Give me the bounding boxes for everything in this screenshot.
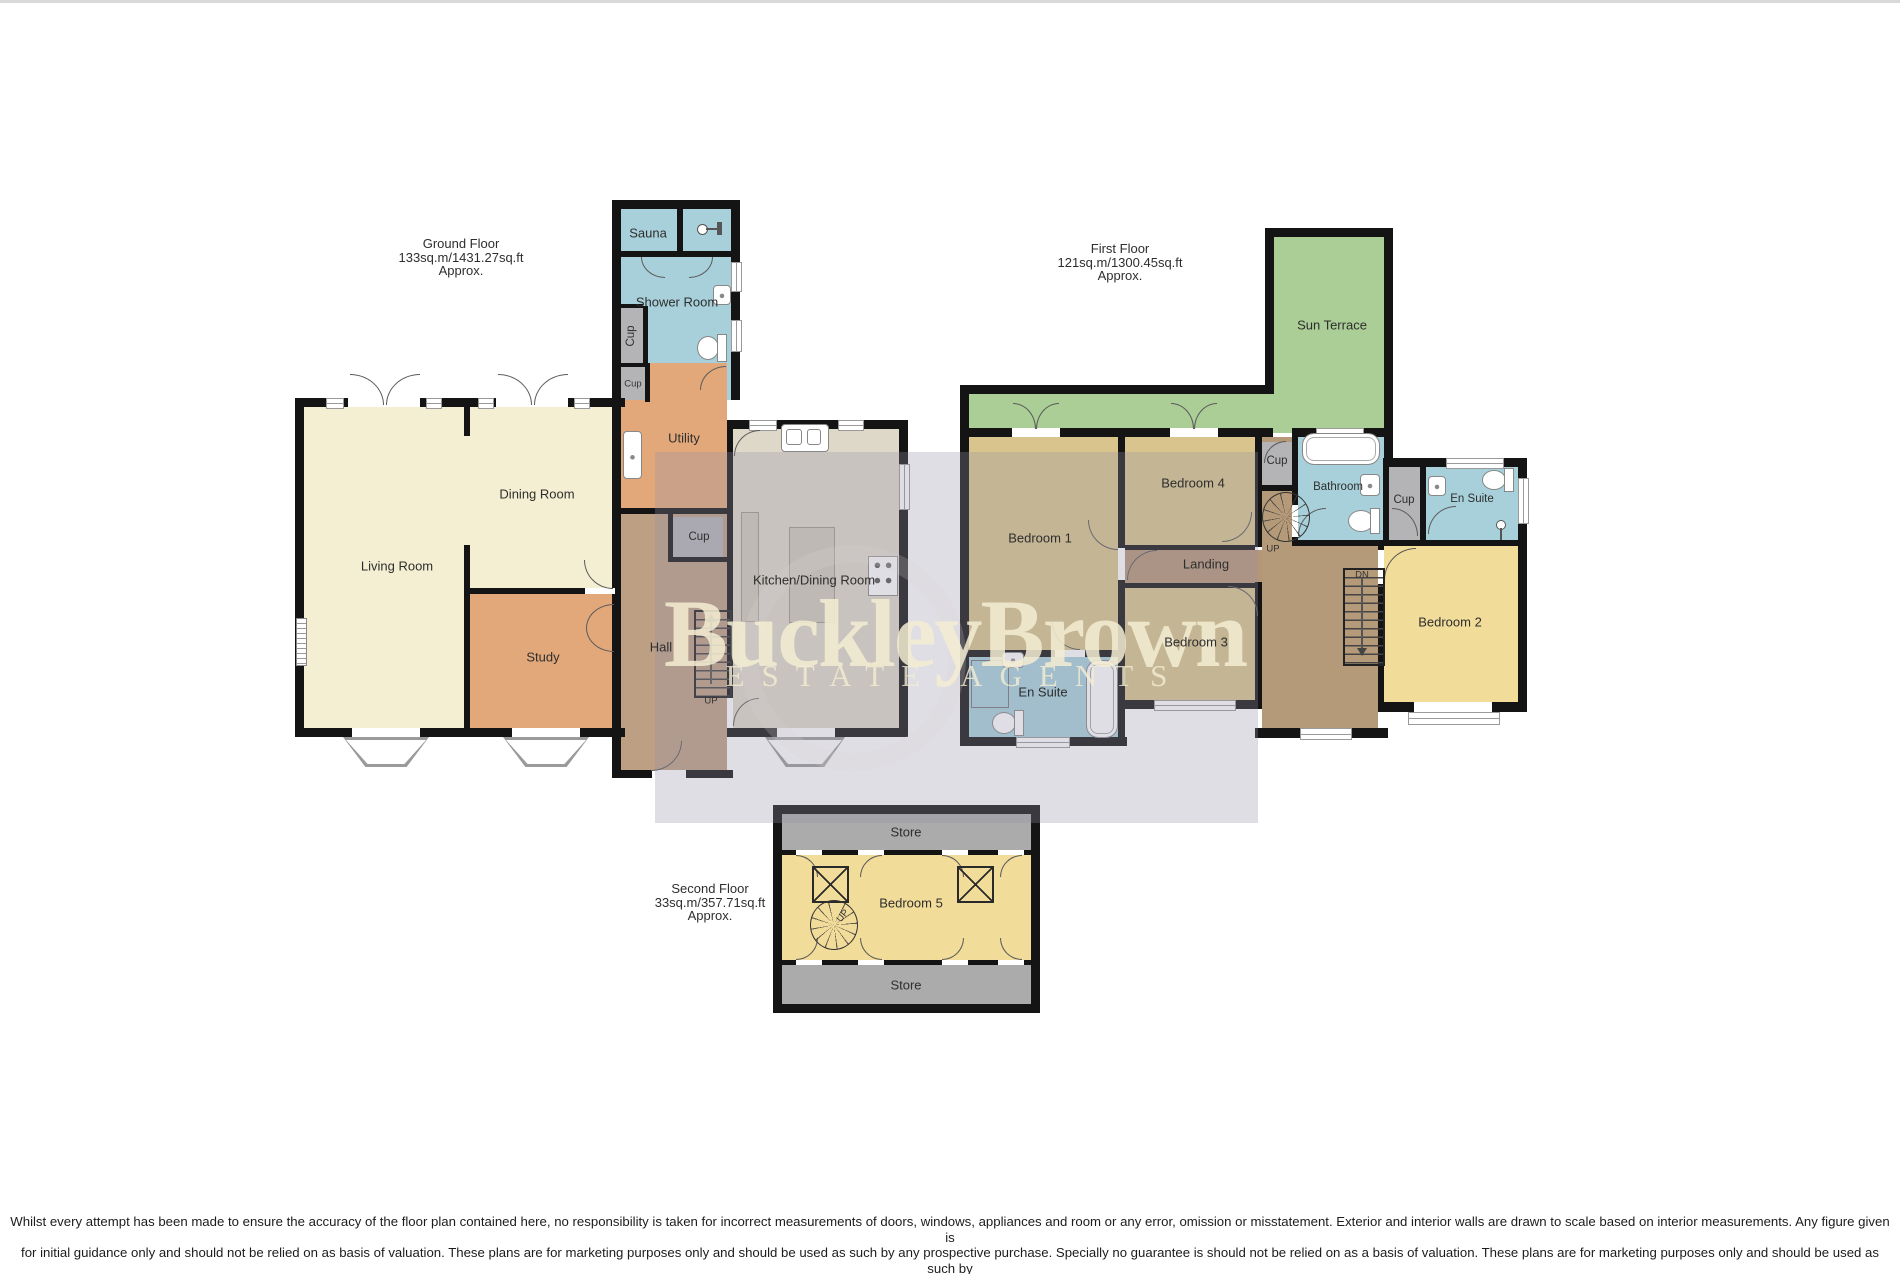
label-study: Study: [526, 650, 559, 665]
door-arc: [350, 374, 384, 405]
first-floor-title: First Floor 121sq.m/1300.45sq.ft Approx.: [1057, 242, 1182, 283]
door-gap: [858, 960, 884, 965]
second-floor-title: Second Floor 33sq.m/357.71sq.ft Approx.: [655, 882, 766, 923]
wall: [295, 398, 304, 737]
floor-approx: Approx.: [655, 909, 766, 923]
wall: [731, 200, 740, 400]
label-ensuite-left: En Suite: [1018, 685, 1067, 700]
label-cup-utility: Cup: [624, 379, 641, 390]
bay-window: [343, 737, 429, 767]
toilet-icon: [1482, 470, 1506, 490]
door-gap: [796, 850, 822, 855]
toilet-tank-icon: [1370, 508, 1380, 534]
door-arc: [534, 374, 568, 405]
shower-head-icon: [717, 222, 722, 235]
floor-area: 33sq.m/357.71sq.ft: [655, 896, 766, 910]
window: [731, 262, 742, 292]
bath-icon: [1302, 433, 1380, 465]
window: [1446, 458, 1504, 469]
floor-name: First Floor: [1057, 242, 1182, 256]
wall: [1383, 458, 1389, 546]
radiator-icon: [296, 618, 307, 666]
wall: [677, 209, 683, 257]
window: [731, 320, 742, 352]
sink-icon: [1428, 476, 1446, 496]
label-kitchen-dining: Kitchen/Dining Room: [753, 573, 875, 588]
label-store-top: Store: [890, 825, 921, 840]
label-utility: Utility: [668, 431, 700, 446]
label-cup-right: Cup: [1393, 494, 1414, 506]
door-gap: [1170, 428, 1218, 437]
watermark-tagline: ESTATE AGENTS: [655, 658, 1255, 694]
label-bedroom4: Bedroom 4: [1161, 476, 1225, 491]
label-sauna: Sauna: [629, 226, 667, 241]
wall: [1255, 428, 1273, 437]
wall: [1265, 228, 1274, 394]
bay-opening: [352, 728, 420, 737]
label-hall: Hall: [650, 640, 672, 655]
window: [1300, 728, 1352, 740]
window: [478, 398, 494, 409]
sink-icon: [1360, 474, 1380, 496]
floorplan-page: BuckleyBrown ESTATE AGENTS Ground Floor …: [0, 0, 1900, 1274]
door-gap: [1012, 428, 1060, 437]
utility-sink-icon: [623, 431, 642, 479]
label-dining-room: Dining Room: [499, 487, 574, 502]
window: [1518, 478, 1529, 524]
floor-name: Ground Floor: [398, 237, 523, 251]
shower-arm-icon: [1500, 528, 1502, 540]
spiral-staircase-icon: [1262, 492, 1310, 542]
label-shower-room: Shower Room: [636, 295, 718, 310]
wall: [960, 385, 1274, 394]
roof-window-icon: [957, 866, 994, 903]
window: [326, 398, 344, 409]
wall: [1384, 228, 1393, 437]
disclaimer-line2: for initial guidance only and should not…: [10, 1245, 1890, 1274]
room-sun-terrace: [1273, 237, 1384, 433]
floor-approx: Approx.: [1057, 269, 1182, 283]
label-store-bottom: Store: [890, 978, 921, 993]
kitchen-sink-icon: [781, 424, 829, 452]
label-cup-shower: Cup: [625, 325, 637, 346]
stair-arrow: [1361, 578, 1363, 648]
wall: [1265, 228, 1392, 237]
door-gap: [942, 960, 968, 965]
wall: [1384, 437, 1393, 458]
label-sun-terrace: Sun Terrace: [1297, 318, 1367, 333]
label-landing: Landing: [1183, 557, 1229, 572]
door-gap: [796, 960, 822, 965]
wall: [621, 363, 645, 367]
window: [426, 398, 442, 409]
window: [574, 398, 590, 409]
wall: [1383, 540, 1527, 546]
label-bedroom1: Bedroom 1: [1008, 531, 1072, 546]
spiral-staircase-icon: [810, 900, 858, 950]
toilet-tank-icon: [717, 334, 727, 362]
label-living-room: Living Room: [361, 559, 433, 574]
disclaimer: Whilst every attempt has been made to en…: [10, 1214, 1890, 1274]
floor-approx: Approx.: [398, 264, 523, 278]
bay-window: [1408, 712, 1500, 725]
wall: [612, 200, 740, 209]
wall: [464, 545, 470, 728]
toilet-tank-icon: [1504, 468, 1514, 492]
wall: [1262, 485, 1298, 491]
door-arc: [498, 374, 532, 405]
door-gap: [942, 850, 968, 855]
bay-window: [503, 737, 589, 767]
label-bedroom2: Bedroom 2: [1418, 615, 1482, 630]
floor-name: Second Floor: [655, 882, 766, 896]
wall: [464, 406, 470, 436]
roof-window-icon: [812, 866, 849, 903]
door-arc: [386, 374, 420, 405]
disclaimer-line1: Whilst every attempt has been made to en…: [10, 1214, 1890, 1245]
label-stairs-up: UP: [1266, 544, 1279, 555]
label-stairs-up: UP: [704, 696, 717, 707]
wall: [612, 200, 621, 406]
wall: [643, 306, 648, 367]
bay-opening: [512, 728, 580, 737]
window: [838, 420, 864, 431]
floor-area: 121sq.m/1300.45sq.ft: [1057, 256, 1182, 270]
label-bedroom3: Bedroom 3: [1164, 635, 1228, 650]
label-cup-top: Cup: [1266, 455, 1287, 467]
wall: [1292, 540, 1390, 546]
label-stairs-dn: DN: [1355, 570, 1369, 581]
stair-arrow-head: [1357, 648, 1367, 656]
window: [749, 420, 777, 431]
label-bedroom5: Bedroom 5: [879, 896, 943, 911]
floor-area: 133sq.m/1431.27sq.ft: [398, 251, 523, 265]
top-divider: [0, 0, 1900, 3]
label-cup-hall: Cup: [688, 531, 709, 543]
door-gap: [998, 960, 1024, 965]
ground-floor-title: Ground Floor 133sq.m/1431.27sq.ft Approx…: [398, 237, 523, 278]
label-ensuite-right: En Suite: [1450, 493, 1493, 505]
label-bathroom: Bathroom: [1313, 481, 1363, 493]
bay-opening: [1414, 702, 1492, 712]
wall: [1420, 467, 1426, 546]
toilet-icon: [697, 336, 719, 360]
wall: [645, 363, 650, 402]
